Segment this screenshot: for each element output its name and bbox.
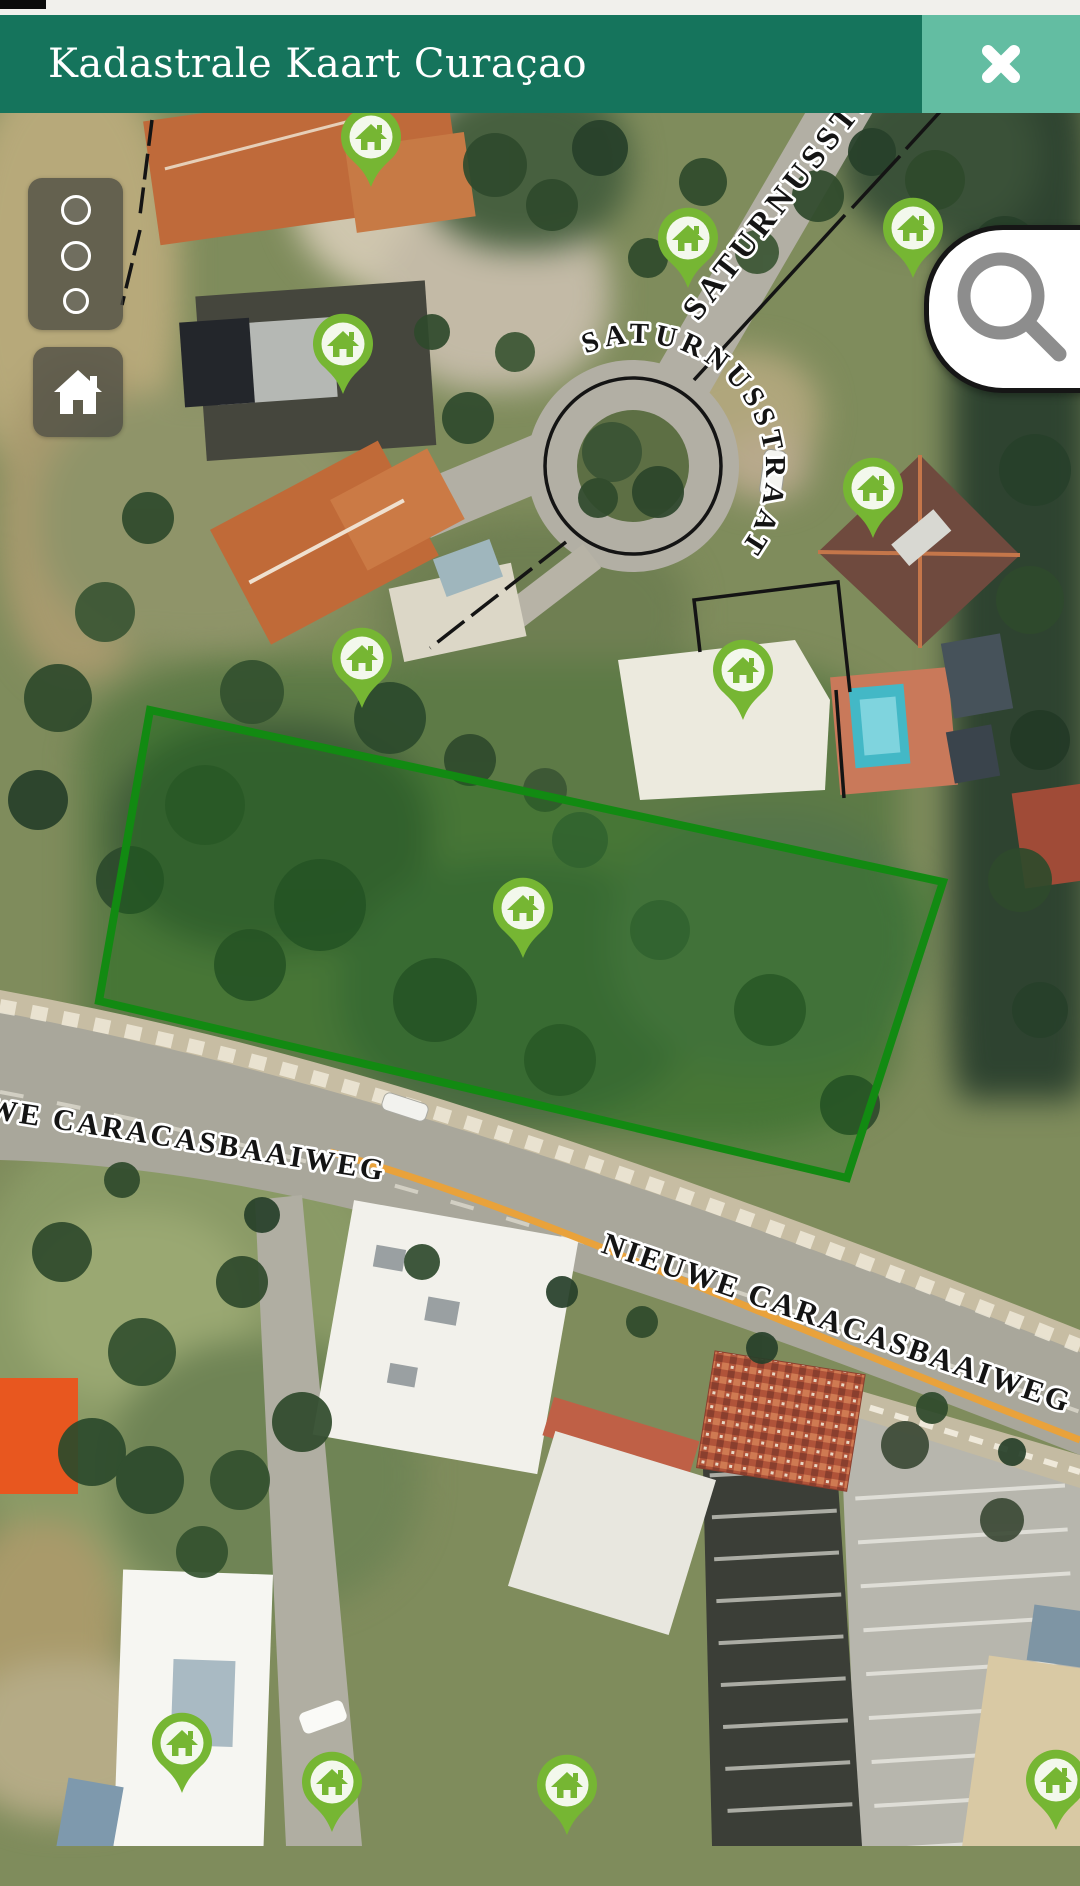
map-canvas[interactable]: SATURNUSSTRAAT SATURNUSSTRAAT NIEUWE CAR…	[0, 0, 1080, 1846]
close-icon	[978, 41, 1024, 87]
status-strip	[0, 0, 1080, 15]
search-button[interactable]	[924, 225, 1080, 393]
home-button[interactable]	[33, 347, 123, 437]
title-bar: Kadastrale Kaart Curaçao	[0, 15, 1080, 113]
home-icon	[52, 368, 104, 416]
layer-circle-button-1[interactable]	[61, 195, 91, 225]
layer-circle-button-2[interactable]	[61, 241, 91, 271]
corner-sliver	[0, 0, 46, 9]
layer-circle-button-3[interactable]	[63, 288, 89, 314]
layer-selector	[28, 178, 123, 330]
page-title: Kadastrale Kaart Curaçao	[48, 41, 587, 87]
map-marker[interactable]	[537, 1755, 597, 1835]
close-button[interactable]	[922, 15, 1080, 113]
search-icon	[943, 240, 1080, 380]
